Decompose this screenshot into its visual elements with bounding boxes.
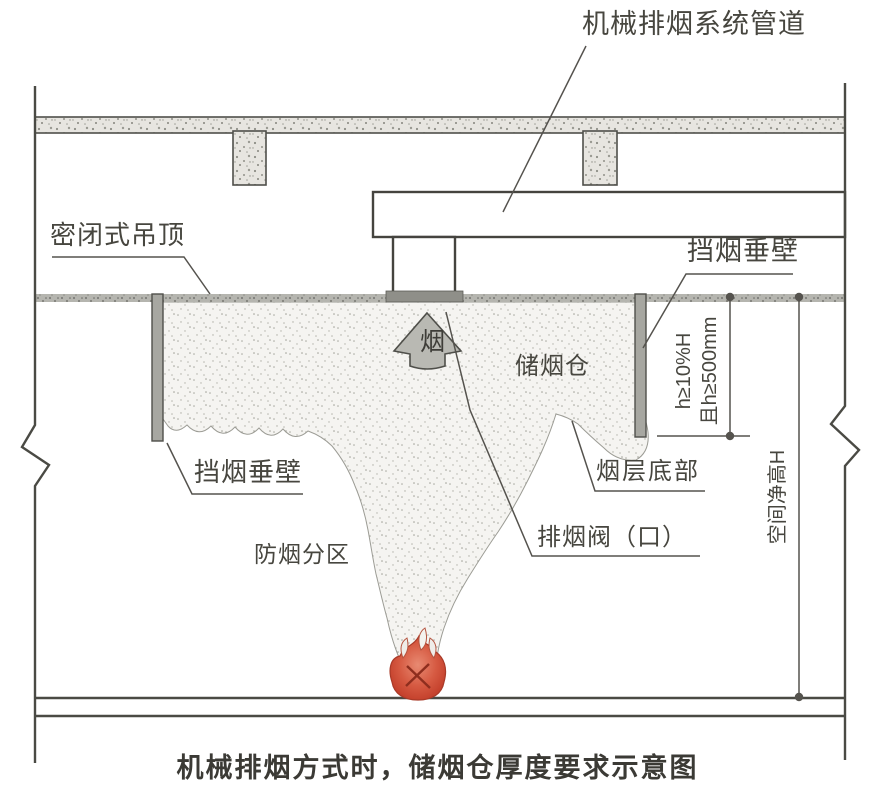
smoke-reservoir-label: 储烟仓 xyxy=(515,354,590,380)
reservoir-depth-req-line2: 且h≥500mm xyxy=(697,317,723,426)
exhaust-opening xyxy=(386,291,463,302)
smoke-layer-bottom-label: 烟层底部 xyxy=(596,459,700,485)
leader-sealed-ceiling xyxy=(52,257,210,294)
reservoir-depth-req-line1: h≥10%H xyxy=(671,317,697,426)
duct-connection xyxy=(393,237,455,295)
smoke-barrier-left-bar xyxy=(152,294,163,441)
smoke-barrier-right-bar xyxy=(635,294,646,437)
sealed-ceiling-label: 密闭式吊顶 xyxy=(50,221,185,250)
floor-slab xyxy=(35,117,845,133)
reservoir-depth-dimension: h≥10%H 且h≥500mm xyxy=(671,317,723,426)
smoke-barrier-right-label: 挡烟垂壁 xyxy=(687,237,799,267)
beam-left xyxy=(233,131,266,185)
clear-height-dimension: 空间净高H xyxy=(765,450,791,544)
left-wall xyxy=(22,86,49,763)
dimension-line-H xyxy=(795,293,803,701)
beam-right xyxy=(583,131,617,185)
exhaust-valve-label: 排烟阀（口） xyxy=(537,525,687,551)
floor-lines xyxy=(35,698,845,716)
diagram-canvas xyxy=(0,0,875,797)
smoke-exhaust-diagram: 机械排烟系统管道 密闭式吊顶 挡烟垂壁 储烟仓 烟 挡烟垂壁 防烟分区 烟层底部… xyxy=(0,0,875,797)
smoke-arrow-label: 烟 xyxy=(420,329,446,357)
diagram-title: 机械排烟方式时，储烟仓厚度要求示意图 xyxy=(0,746,875,785)
exhaust-duct xyxy=(373,192,845,237)
duct-label: 机械排烟系统管道 xyxy=(582,10,806,40)
smoke-barrier-left-label: 挡烟垂壁 xyxy=(194,458,302,487)
smoke-zone-label: 防烟分区 xyxy=(254,542,350,567)
right-wall xyxy=(831,83,859,760)
